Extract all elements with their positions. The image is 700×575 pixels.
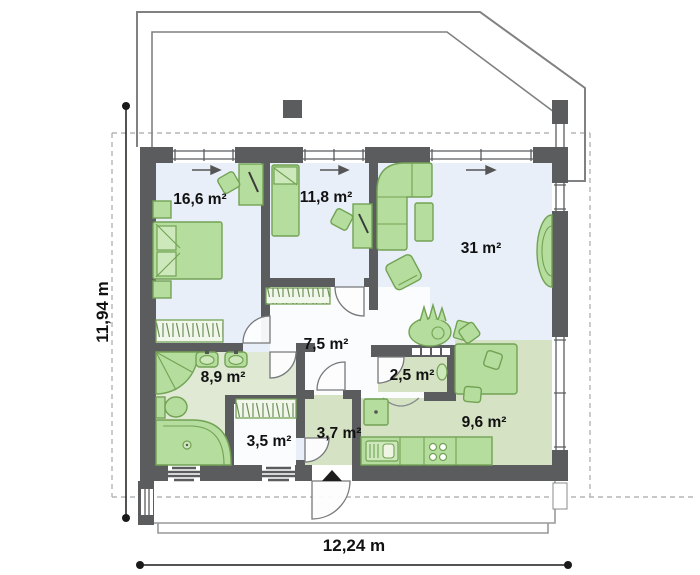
- dimension-width-label: 12,24 m: [323, 536, 385, 555]
- plant: [409, 318, 451, 346]
- wall-pantry-bottom: [424, 392, 447, 401]
- toilet-tank: [156, 397, 165, 418]
- wardrobe-hatch: [236, 399, 296, 418]
- label-pantry: 2,5 m²: [390, 367, 435, 384]
- desk: [239, 164, 263, 205]
- label-bathroom: 8,9 m²: [201, 369, 246, 386]
- wall-corner-stub: [552, 100, 568, 124]
- window-corner-stub: [552, 124, 568, 147]
- dimension-width: 12,24 m: [136, 536, 572, 569]
- hallway-furniture: [266, 288, 330, 304]
- sink-basin: [383, 444, 394, 458]
- label-kitchen: 9,6 m²: [462, 414, 507, 431]
- tap: [205, 350, 209, 354]
- porch-steps: [150, 481, 555, 533]
- label-wardrobe-room: 3,5 m²: [247, 433, 292, 450]
- window-bedroom-2: [303, 147, 365, 163]
- window-bottom-left-stub: [141, 489, 153, 515]
- label-entry: 3,7 m²: [317, 425, 362, 442]
- label-bedroom-1: 16,6 m²: [173, 191, 226, 208]
- label-bedroom-2: 11,8 m²: [300, 189, 353, 206]
- label-living-room: 31 m²: [461, 240, 502, 257]
- pillow: [157, 226, 176, 250]
- front-door: [312, 465, 352, 519]
- nightstand: [153, 201, 171, 218]
- floor-plan-page: 16,6 m² 11,8 m² 31 m² 7,5 m² 8,9 m² 2,5 …: [0, 0, 700, 575]
- terrace-inner-line: [152, 32, 554, 147]
- nightstand: [153, 281, 171, 298]
- chimney: [283, 100, 302, 118]
- coffee-table: [415, 203, 433, 241]
- wall-hall-bath-vertical: [296, 343, 305, 438]
- wall-jamb-1: [296, 460, 305, 465]
- plant-leaves: [420, 305, 446, 321]
- wardrobe-hatch: [156, 320, 223, 342]
- pillow: [274, 167, 297, 184]
- wall-exterior-bottom: [140, 465, 568, 481]
- window-bedroom-1: [173, 147, 235, 163]
- wall-entry-top-b: [343, 390, 352, 399]
- chair: [463, 386, 481, 402]
- wardrobe-hatch: [266, 288, 330, 304]
- desk: [353, 204, 372, 248]
- wall-bedroom1-bath-a: [156, 343, 243, 352]
- corner-step: [553, 483, 567, 509]
- window-radiator-wardrobe-room: [262, 465, 295, 481]
- floor-plan-drawing: 16,6 m² 11,8 m² 31 m² 7,5 m² 8,9 m² 2,5 …: [0, 0, 700, 575]
- dining-table: [455, 344, 517, 394]
- wall-exterior-left: [140, 147, 156, 481]
- toilet: [165, 397, 187, 417]
- wall-bedroom2-hall-a: [270, 278, 335, 287]
- window-living-right: [552, 183, 568, 211]
- pantry-furniture: [437, 364, 447, 380]
- dimension-height-label: 11,94 m: [93, 281, 112, 342]
- wardrobe-room-furniture: [236, 399, 296, 418]
- label-hallway: 7,5 m²: [304, 336, 349, 353]
- sink: [437, 364, 447, 380]
- window-radiator-bath: [168, 465, 200, 481]
- tap: [234, 350, 238, 354]
- window-living: [430, 147, 533, 163]
- wall-entry-top-a: [305, 390, 314, 399]
- window-kitchen-right: [552, 337, 568, 450]
